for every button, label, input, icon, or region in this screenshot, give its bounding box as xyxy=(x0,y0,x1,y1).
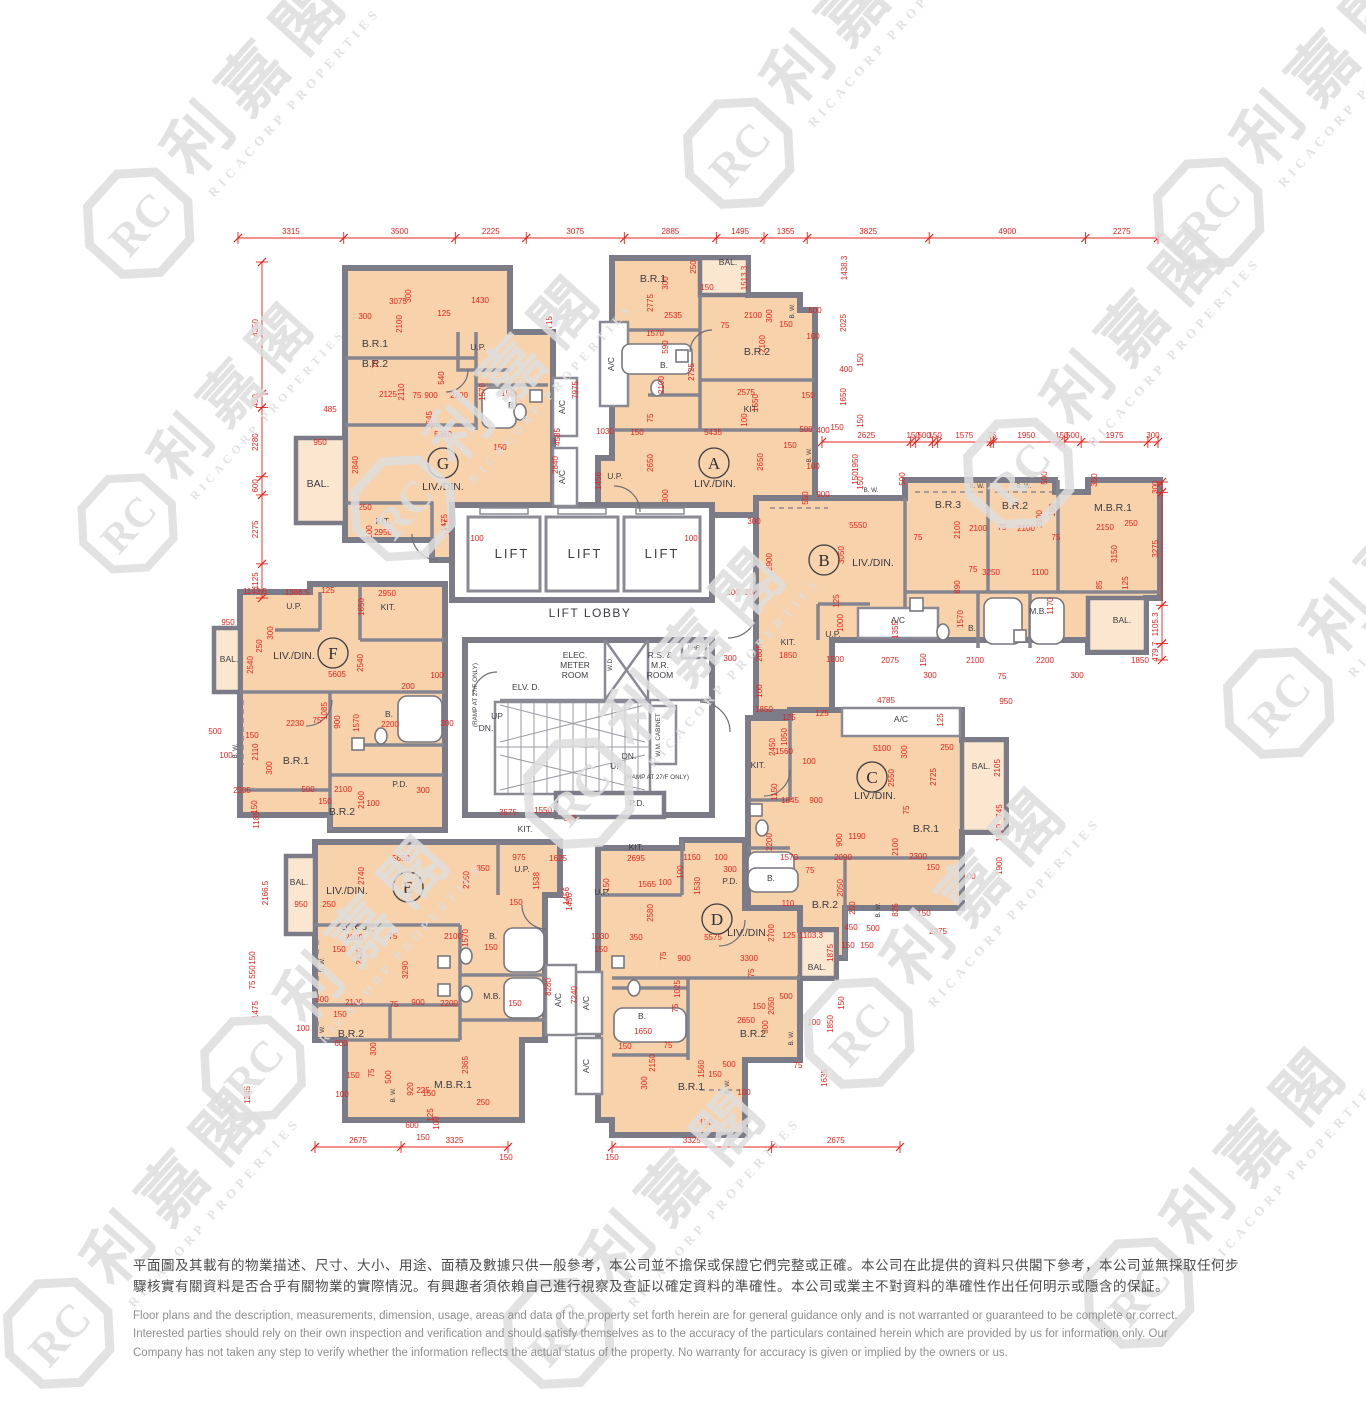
room-label: B.R.1 xyxy=(362,338,388,350)
room-label: A/C xyxy=(891,615,905,625)
room-label: LIV./DIN. xyxy=(422,481,464,493)
room-label: DN. xyxy=(479,723,494,733)
room-label: B. W. xyxy=(875,902,882,917)
dim-label: 1513.3 xyxy=(740,265,749,290)
dim-label: 2200 xyxy=(440,999,458,1008)
dim-label: 150 xyxy=(493,443,507,452)
unit-letter: A xyxy=(708,454,721,473)
room-label: B. W. xyxy=(789,303,796,318)
room-label: U.P. xyxy=(514,864,529,874)
dim-label: 500 xyxy=(799,425,813,434)
dim-label: 350 xyxy=(476,864,490,873)
dim-label: 2695 xyxy=(627,854,645,863)
dim-label: 300 xyxy=(747,517,761,526)
room-label: KIT. xyxy=(376,516,391,526)
room-label: B. W. xyxy=(319,957,326,972)
dim-label: 550 xyxy=(248,965,257,979)
dim-label: 2100 xyxy=(450,391,468,400)
room-label: (RAMP AT 27/F ONLY) xyxy=(472,663,479,727)
dim-label: 1875 xyxy=(826,944,835,962)
room-label: METER xyxy=(560,660,590,670)
dim-label: 150 xyxy=(801,391,815,400)
chain-dim-label: 1975 xyxy=(1106,431,1124,440)
dim-label: 100 xyxy=(737,1088,751,1097)
dim-label: 3150 xyxy=(1110,545,1119,563)
dim-label: 100 xyxy=(366,799,380,808)
dim-label: 825 xyxy=(891,903,900,917)
dim-label: 2300 xyxy=(909,852,927,861)
room-label: KIT. xyxy=(381,602,396,612)
dim-label: 1560 xyxy=(697,1060,706,1078)
dim-label: 300 xyxy=(265,761,274,775)
dim-label: 1185 xyxy=(252,811,261,829)
room-label: LIV./DIN. xyxy=(727,927,769,939)
dim-label: 2100 xyxy=(969,524,987,533)
dim-label: 1030 xyxy=(596,427,614,436)
chain-dim-label: 1950 xyxy=(1017,431,1035,440)
dim-label: 450 xyxy=(844,923,858,932)
room-label: M.R. xyxy=(651,660,669,670)
dim-label: 2725 xyxy=(687,363,696,381)
room-label: LIV./DIN. xyxy=(694,478,736,490)
dim-label: 1150 xyxy=(683,853,701,862)
dim-label: 5100 xyxy=(873,744,891,753)
dim-label: 125 xyxy=(437,309,451,318)
dim-label: 2775 xyxy=(646,294,655,312)
dim-label: 1635 xyxy=(820,1069,829,1087)
room-label: ELEC. xyxy=(563,650,588,660)
dim-label: 2550 xyxy=(887,769,896,787)
dim-label: 150 xyxy=(783,441,797,450)
dim-label: 150 xyxy=(1048,503,1057,517)
dim-label: 2100 xyxy=(953,521,962,539)
dim-label: 125 xyxy=(1121,576,1130,590)
dim-label: 250 xyxy=(848,901,857,915)
room-label: BAL. xyxy=(719,257,737,267)
dim-label: 150 xyxy=(594,945,608,954)
dim-label: 3290 xyxy=(401,961,410,979)
sink xyxy=(676,350,688,362)
chain-dim-label: 150 xyxy=(928,431,942,440)
dim-label: 950 xyxy=(313,438,327,447)
room-label: U.P. xyxy=(825,629,840,639)
dim-label: 1100 xyxy=(1031,568,1049,577)
dim-label: 500 xyxy=(898,472,907,486)
dim-label: 1845 xyxy=(781,796,799,805)
dim-label: 2025 xyxy=(839,314,848,332)
dim-label: 590 xyxy=(661,340,670,354)
room-label: B.R.2 xyxy=(812,899,838,911)
dim-label: 1570 xyxy=(646,329,664,338)
room-label: KIT. xyxy=(629,842,644,852)
chain-dim-label: 2275 xyxy=(1113,227,1131,236)
dim-label: 150 xyxy=(630,428,644,437)
dim-label: 100 xyxy=(755,684,764,698)
dim-label: 300 xyxy=(661,489,670,503)
dim-label: 2110 xyxy=(397,383,406,401)
room-label: BAL. xyxy=(220,654,238,664)
dim-label: 2740 xyxy=(357,867,366,885)
dim-label: 5650 xyxy=(392,854,410,863)
room-label: LIFT xyxy=(495,546,530,561)
dim-label: 1050 xyxy=(780,728,789,746)
room-label: B.R.1 xyxy=(640,273,666,285)
room-label: LIFT xyxy=(645,546,680,561)
dim-label: 2350 xyxy=(462,871,471,889)
sink xyxy=(1014,630,1026,642)
chain-dim-label: 3275 xyxy=(1151,539,1160,557)
dim-label: 2100 xyxy=(345,933,363,942)
dim-label: 150 xyxy=(856,414,865,428)
dim-label: 2100 xyxy=(395,315,404,333)
dim-label: 950 xyxy=(294,900,308,909)
dim-label: 2950 xyxy=(378,589,396,598)
room-label: B. W. xyxy=(806,447,813,462)
sink xyxy=(352,738,364,750)
dim-label: 75 xyxy=(313,716,322,725)
room-label: LIFT xyxy=(568,546,603,561)
room-label: KIT. xyxy=(751,760,766,770)
room-label: FHR xyxy=(688,645,701,652)
dim-label: 75 xyxy=(248,980,257,989)
room-label: B.R.3 xyxy=(935,499,961,511)
dim-label: 2110 xyxy=(251,743,260,761)
dim-label: 150 xyxy=(499,1153,513,1162)
room-label: B.R.2 xyxy=(362,358,388,370)
dim-label: 2725 xyxy=(929,768,938,786)
dim-label: 2840 xyxy=(351,456,360,474)
dim-label: 4585 xyxy=(553,428,562,446)
dim-label: 900 xyxy=(333,715,342,729)
toilet xyxy=(375,728,387,744)
dim-label: 2125 xyxy=(379,390,397,399)
chain-dim-label: 3315 xyxy=(282,227,300,236)
disclaimer-english: Floor plans and the description, measure… xyxy=(133,1307,1266,1362)
chain-dim-label: 75 xyxy=(988,431,997,440)
sink xyxy=(750,804,762,816)
dim-label: 300 xyxy=(440,719,454,728)
dim-label: 5605 xyxy=(328,670,346,679)
dim-label: 150 xyxy=(708,1070,722,1079)
room-label: A/C xyxy=(553,993,563,1007)
chain-dim-label: 4900 xyxy=(998,227,1016,236)
room-label: B. W. xyxy=(232,743,239,758)
room-label: DN. xyxy=(622,751,637,761)
dim-label: 1570 xyxy=(780,853,798,862)
dim-label: 125 xyxy=(815,709,829,718)
room-label: B.R.2 xyxy=(329,806,355,818)
disclaimer-chinese: 平面圖及其載有的物業描述、尺寸、大小、用途、面積及數據只供一般參考，本公司並不擔… xyxy=(133,1256,1266,1298)
room-label: LIFT LOBBY xyxy=(549,606,632,620)
dim-label: 350 xyxy=(1090,473,1099,487)
dim-label: 2110 xyxy=(355,947,364,965)
dim-label: 1143.5 xyxy=(243,587,267,596)
room-label: LIV./DIN. xyxy=(852,557,894,569)
dim-label: 100 xyxy=(430,671,444,680)
room-label: U.P. xyxy=(594,887,609,897)
chain-dim-label: 1495 xyxy=(731,227,749,236)
room-label: KIT. xyxy=(518,824,533,834)
dim-label: 1650 xyxy=(357,598,366,616)
dim-label: 150 xyxy=(318,797,332,806)
dim-label: 2075 xyxy=(881,656,899,665)
dim-label: 500 xyxy=(208,727,222,736)
dim-label: 250 xyxy=(255,639,264,653)
dim-label: 1438.3 xyxy=(840,255,849,280)
dim-label: 75 xyxy=(747,968,756,977)
dim-label: 75 xyxy=(390,1000,399,1009)
dim-label: 1650 xyxy=(634,1027,652,1036)
unit-letter: G xyxy=(437,454,449,473)
dim-label: 100 xyxy=(296,1024,310,1033)
dim-label: 2150 xyxy=(1096,523,1114,532)
dim-label: 1625 xyxy=(549,854,567,863)
room-label: U.P. xyxy=(470,342,485,352)
chain-dim-label: 600 xyxy=(251,479,260,493)
dim-label: 500 xyxy=(722,1060,736,1069)
chain-dim-label: 500 xyxy=(1066,431,1080,440)
dim-label: 1645 xyxy=(425,411,434,429)
room-label: A/C xyxy=(581,1059,591,1073)
room-label: KIT. xyxy=(744,404,759,414)
dim-label: 3575 xyxy=(499,808,517,817)
dim-label: 5550 xyxy=(849,521,867,530)
dim-label: 2100 xyxy=(891,838,900,856)
dim-label: 100 xyxy=(365,525,374,539)
dim-label: 1850 xyxy=(779,651,797,660)
dim-label: 2100 xyxy=(357,791,366,809)
room-label: B. W. xyxy=(319,1025,326,1040)
dim-label: 150 xyxy=(856,353,865,367)
dim-label: 150 xyxy=(837,996,846,1010)
dim-label: 100 xyxy=(470,534,484,543)
dim-label: 150 xyxy=(919,653,928,667)
dim-label: 150 xyxy=(917,909,931,918)
floorplan-page: 3315350022253075288514951355382549002275… xyxy=(0,0,1366,1366)
dim-label: 900 xyxy=(816,490,830,499)
dim-label: 1475 xyxy=(251,1001,260,1019)
dim-label: 100 xyxy=(740,413,749,427)
room-label: M.B. xyxy=(483,991,500,1001)
dim-label: 100 xyxy=(432,1116,441,1130)
dim-label: 1570 xyxy=(478,383,487,401)
room-label: M.B. xyxy=(1029,606,1046,616)
dim-label: 75 xyxy=(998,523,1007,532)
dim-label: 75 xyxy=(367,1068,376,1077)
room-label: UP xyxy=(610,761,622,771)
room-label: B. xyxy=(508,400,516,410)
dim-label: 150 xyxy=(508,999,522,1008)
unit-letter: C xyxy=(866,768,877,787)
dim-label: 3250 xyxy=(982,568,1000,577)
dim-label: 75 xyxy=(413,391,422,400)
dim-label: 500 xyxy=(384,1070,393,1084)
room-label: BAL. xyxy=(808,962,826,972)
dim-label: 485 xyxy=(323,405,337,414)
room-label: W.M. CABINET xyxy=(655,713,662,757)
dim-label: 300 xyxy=(563,814,577,823)
dim-label: 5360 xyxy=(434,430,452,439)
bathtub xyxy=(504,978,544,1018)
dim-label: 150 xyxy=(509,898,523,907)
room-label: R.S. & xyxy=(648,650,673,660)
sink xyxy=(438,956,450,968)
toilet xyxy=(628,980,640,996)
dim-label: 125 xyxy=(936,713,945,727)
dim-label: 125 xyxy=(832,594,841,608)
room-label: ELV. D. xyxy=(512,682,540,692)
dim-label: 2950 xyxy=(374,528,392,537)
dim-label: 1570 xyxy=(956,610,965,628)
dim-label: 300 xyxy=(765,309,774,323)
dim-label: 150 xyxy=(926,863,940,872)
dim-label: 1150 xyxy=(770,783,779,801)
dim-label: 300 xyxy=(266,626,275,640)
dim-label: 150 xyxy=(416,1133,430,1142)
dim-label: 75 xyxy=(646,413,655,422)
dim-label: 2100 xyxy=(1017,524,1035,533)
dim-label: 1550 xyxy=(534,806,552,815)
room-label: LIV./DIN. xyxy=(273,650,315,662)
dim-label: 2650 xyxy=(737,1016,755,1025)
dim-label: 250 xyxy=(322,900,336,909)
room-label: B. W. xyxy=(1016,483,1031,490)
room-label: BAL. xyxy=(1113,615,1131,625)
dim-label: 300 xyxy=(416,786,430,795)
dim-label: 1950 xyxy=(851,454,860,472)
dim-label: 2540 xyxy=(356,654,365,672)
dim-label: 1500 xyxy=(826,655,844,664)
dim-label: 300 xyxy=(723,654,737,663)
dim-label: 500 xyxy=(779,992,793,1001)
dim-label: 150 xyxy=(830,423,844,432)
dim-label: 100 xyxy=(802,757,816,766)
bathtub xyxy=(504,928,544,972)
dim-label: 7975 xyxy=(571,381,580,399)
dim-label: 2200 xyxy=(381,720,399,729)
room-label: B. xyxy=(638,1011,646,1021)
dim-label: 125 xyxy=(321,586,335,595)
dim-label: 1456 xyxy=(562,887,571,905)
dim-label: 1900 xyxy=(995,857,1004,875)
chain-dim-label: 2675 xyxy=(827,1136,845,1145)
dim-label: 250 xyxy=(358,503,372,512)
dim-label: 2230 xyxy=(286,719,304,728)
chain-dim-label: 300 xyxy=(1151,480,1160,494)
dim-label: 2200 xyxy=(1036,656,1054,665)
room-label: M.B.R.1 xyxy=(434,1079,472,1091)
dim-label: 200 xyxy=(744,588,758,597)
dim-label: 900 xyxy=(835,833,844,847)
dim-label: 300 xyxy=(723,865,737,874)
dim-label: 2050 xyxy=(836,879,845,897)
dim-label: 2305 xyxy=(233,786,251,795)
room-label: UP xyxy=(491,711,503,721)
dim-label: 75 xyxy=(914,533,923,542)
room-label: BAL. xyxy=(307,478,330,490)
dim-label: 75 xyxy=(389,932,398,941)
room-label: B. W. xyxy=(863,487,878,494)
chain-dim-label: 1105.3 xyxy=(1151,612,1160,636)
room-label: B. xyxy=(385,709,393,719)
dim-label: 950 xyxy=(999,697,1013,706)
dim-label: 150 xyxy=(484,943,498,952)
room-label: U.P. xyxy=(286,601,301,611)
chain-dim-label: 2675 xyxy=(349,1136,367,1145)
dim-label: 250 xyxy=(940,743,954,752)
room-label: P.D. xyxy=(629,798,644,808)
chain-dim-label: 1355 xyxy=(777,227,795,236)
dim-label: 1650 xyxy=(839,388,848,406)
dim-label: 75 xyxy=(794,1061,803,1070)
chain-dim-label: 2885 xyxy=(661,227,679,236)
toilet xyxy=(460,986,472,1002)
dim-label: 1570 xyxy=(461,929,470,947)
dim-label: 600 xyxy=(334,1039,348,1048)
room-label: B.R.3 xyxy=(341,921,367,933)
dim-label: 600 xyxy=(405,1121,419,1130)
dim-label: 2580 xyxy=(646,904,655,922)
dim-label: 950 xyxy=(221,618,235,627)
room-label: B. xyxy=(767,873,775,883)
sink xyxy=(612,956,624,968)
dim-label: 200 xyxy=(401,682,415,691)
dim-label: 75 xyxy=(902,805,911,814)
bathtub xyxy=(398,696,442,742)
dim-label: 2105 xyxy=(993,759,1002,777)
dim-label: 2050 xyxy=(767,997,776,1015)
dim-label: 5435 xyxy=(704,428,722,437)
toilet xyxy=(937,624,949,640)
chain-dim-label: 2625 xyxy=(857,431,875,440)
chain-dim-label: 2275 xyxy=(251,520,260,538)
dim-label: 1560 xyxy=(775,747,793,756)
dim-label: 100 xyxy=(806,332,820,341)
dim-label: 2100 xyxy=(657,376,666,394)
dim-label: 2200 xyxy=(765,833,774,851)
dim-label: 2100 xyxy=(1035,510,1044,528)
room-label: B. xyxy=(660,360,668,370)
dim-label: 150 xyxy=(346,1071,360,1080)
dim-label: 150 xyxy=(245,731,259,740)
dim-label: 100 xyxy=(726,588,740,597)
dim-label: 300 xyxy=(358,312,372,321)
sink xyxy=(438,984,450,996)
dim-label: 2365 xyxy=(461,1056,470,1074)
dim-label: 1530 xyxy=(693,877,702,895)
dim-label: 150 xyxy=(248,951,257,965)
room-label: A/C xyxy=(606,357,616,371)
dim-label: 150 xyxy=(752,1002,766,1011)
dim-label: 100 xyxy=(684,534,698,543)
dim-label: 100 xyxy=(658,878,672,887)
room-label: P.D. xyxy=(392,779,407,789)
dim-label: 540 xyxy=(437,371,446,385)
dim-label: 1030 xyxy=(591,932,609,941)
disclaimer-block: 平面圖及其載有的物業描述、尺寸、大小、用途、面積及數據只供一般參考，本公司並不擔… xyxy=(133,1256,1266,1362)
dim-label: 900 xyxy=(677,954,691,963)
dim-label: 2090 xyxy=(834,853,852,862)
dim-label: 300 xyxy=(404,289,413,303)
dim-label: 500 xyxy=(301,785,315,794)
dim-label: 975 xyxy=(512,853,526,862)
room-label: W.D. xyxy=(607,657,614,671)
dim-label: 1850 xyxy=(1131,656,1149,665)
dim-label: 2100 xyxy=(966,656,984,665)
dim-label: 1475 xyxy=(443,518,452,536)
room-label: B.R.2 xyxy=(740,1028,766,1040)
chain-dim-label: 2225 xyxy=(482,227,500,236)
